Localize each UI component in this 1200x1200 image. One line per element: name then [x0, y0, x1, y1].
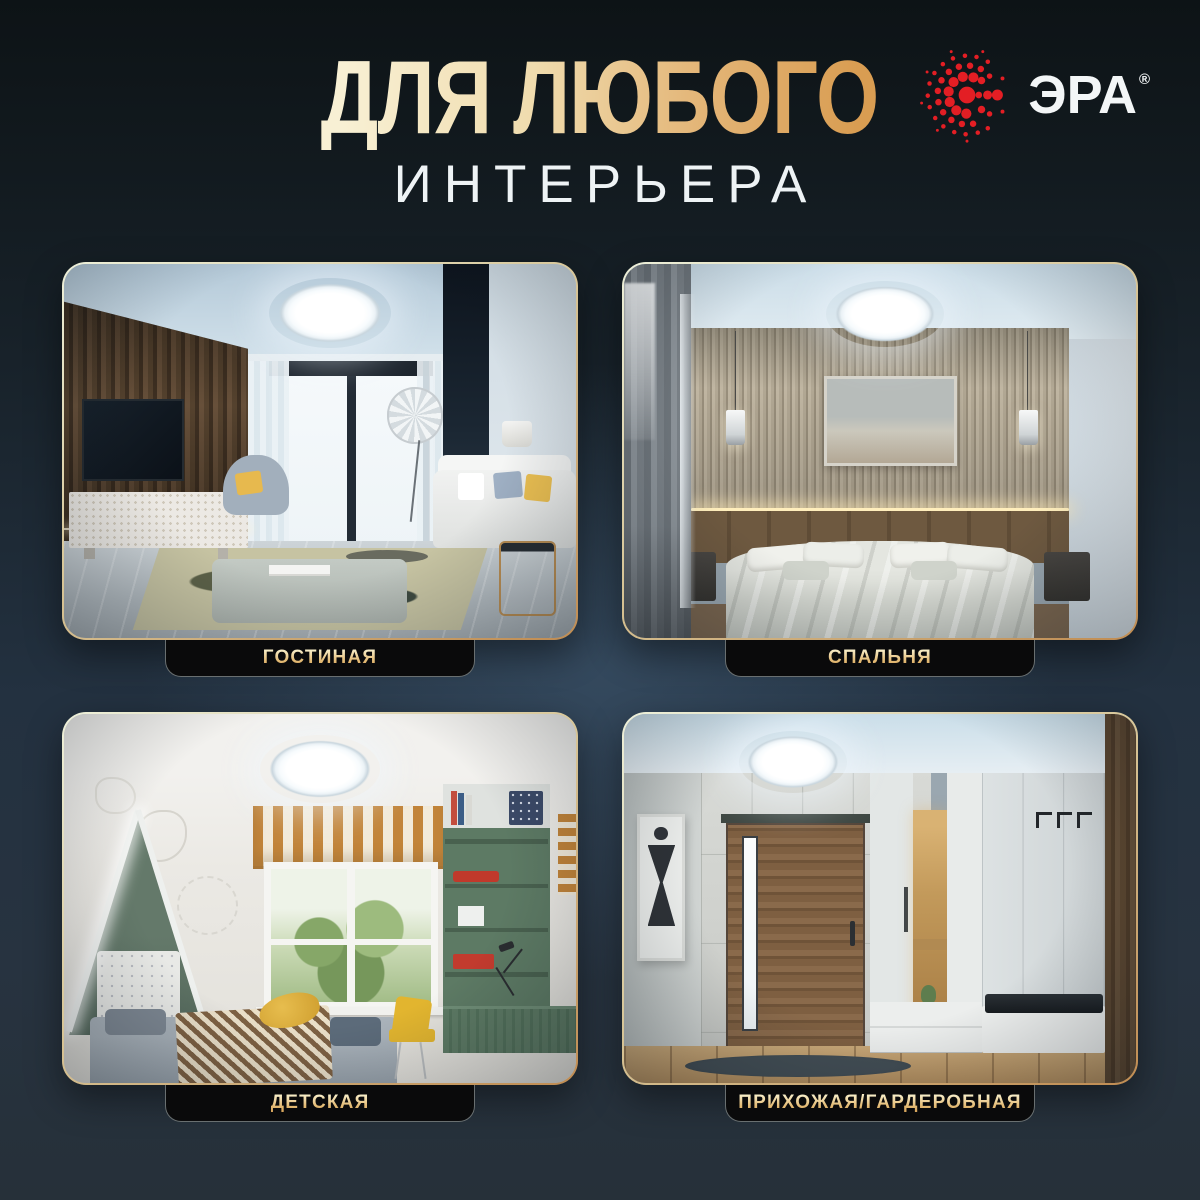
era-logo: ЭРА®: [916, 44, 1150, 146]
room-label-kids-room: ДЕТСКАЯ: [165, 1085, 475, 1122]
ceiling-light: [269, 278, 391, 348]
era-brand-name: ЭРА: [1028, 68, 1137, 122]
room-card-hallway: ПРИХОЖАЯ/ГАРДЕРОБНАЯ: [622, 712, 1138, 1085]
era-brand-text: ЭРА®: [1028, 68, 1150, 122]
room-label-hallway: ПРИХОЖАЯ/ГАРДЕРОБНАЯ: [725, 1085, 1035, 1122]
page-subtitle: ИНТЕРЬЕРА: [0, 158, 1200, 211]
room-label-bedroom: СПАЛЬНЯ: [725, 640, 1035, 677]
room-card-living-room: ГОСТИНАЯ: [62, 262, 578, 640]
room-label-text: ГОСТИНАЯ: [263, 647, 378, 669]
kids-room-photo: [64, 714, 576, 1083]
ceiling-light: [826, 281, 944, 347]
room-label-living-room: ГОСТИНАЯ: [165, 640, 475, 677]
room-label-text: ДЕТСКАЯ: [271, 1092, 370, 1114]
room-label-text: СПАЛЬНЯ: [828, 647, 932, 669]
hallway-photo: [624, 714, 1136, 1083]
page-title: ДЛЯ ЛЮБОГО: [321, 48, 879, 150]
ceiling-light: [260, 735, 380, 803]
bedroom-photo: [624, 264, 1136, 638]
era-logo-icon: [916, 44, 1018, 146]
room-card-kids-room: ДЕТСКАЯ: [62, 712, 578, 1085]
vignette: [624, 714, 1136, 1083]
living-room-photo: [64, 264, 576, 638]
room-label-text: ПРИХОЖАЯ/ГАРДЕРОБНАЯ: [738, 1092, 1021, 1114]
registered-mark: ®: [1139, 72, 1150, 87]
page-background: { "header": { "title_line1": "ДЛЯ ЛЮБОГО…: [0, 0, 1200, 1200]
room-card-bedroom: СПАЛЬНЯ: [622, 262, 1138, 640]
ceiling-light: [739, 731, 847, 793]
